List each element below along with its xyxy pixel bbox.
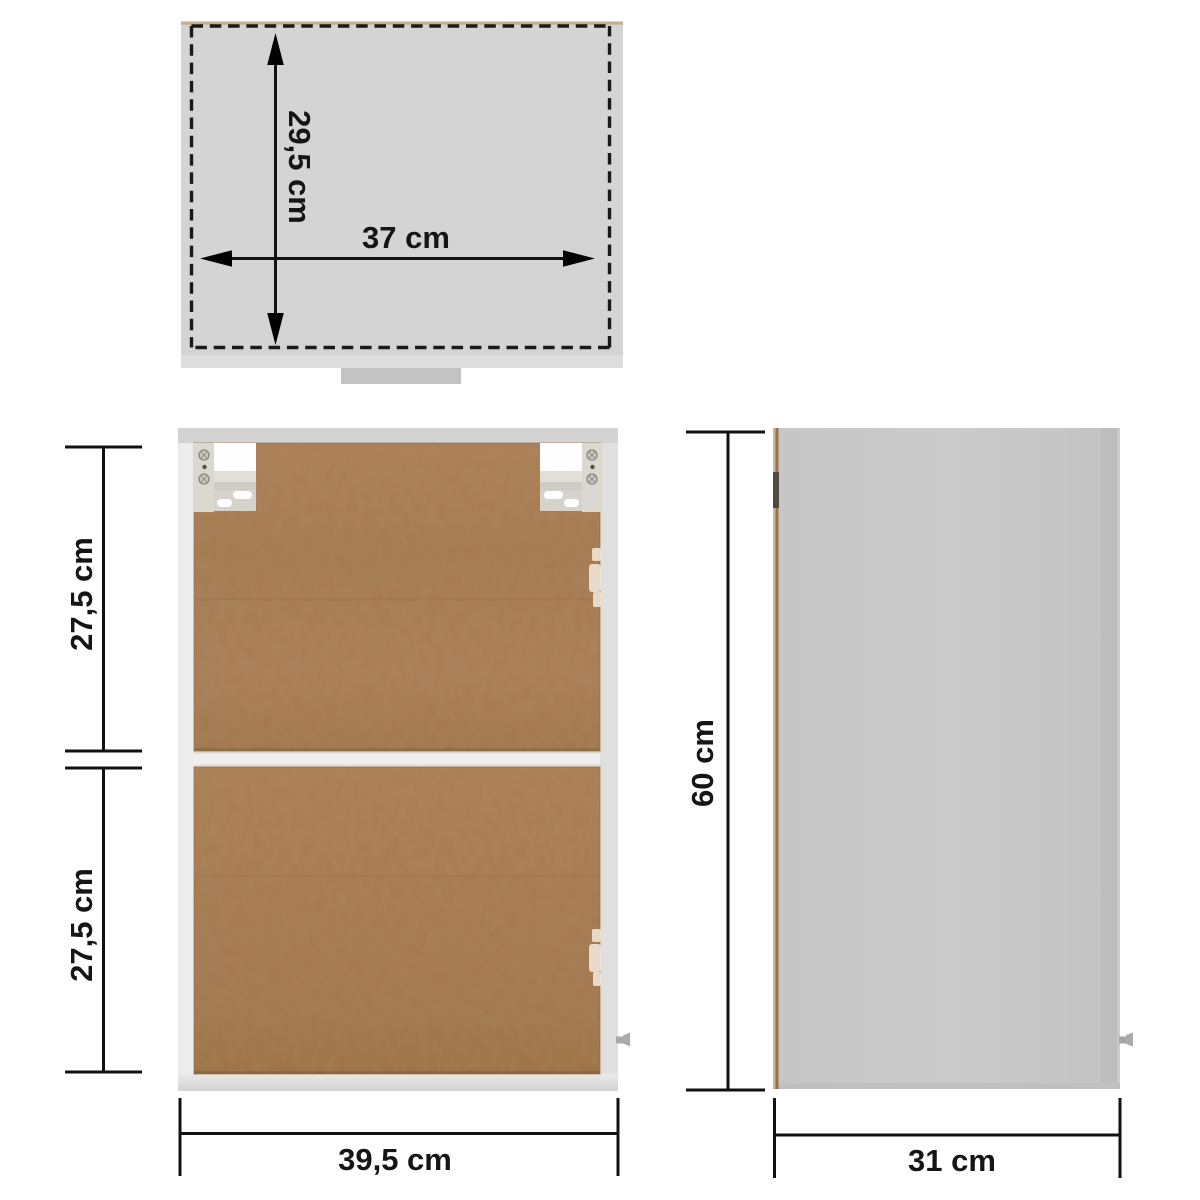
svg-text:27,5 cm: 27,5 cm [64, 537, 99, 651]
svg-text:27,5 cm: 27,5 cm [64, 868, 99, 982]
svg-text:60 cm: 60 cm [685, 719, 720, 807]
svg-text:37 cm: 37 cm [362, 220, 450, 255]
svg-text:29,5 cm: 29,5 cm [282, 110, 317, 224]
svg-text:31 cm: 31 cm [908, 1143, 996, 1178]
svg-text:39,5 cm: 39,5 cm [338, 1142, 452, 1177]
